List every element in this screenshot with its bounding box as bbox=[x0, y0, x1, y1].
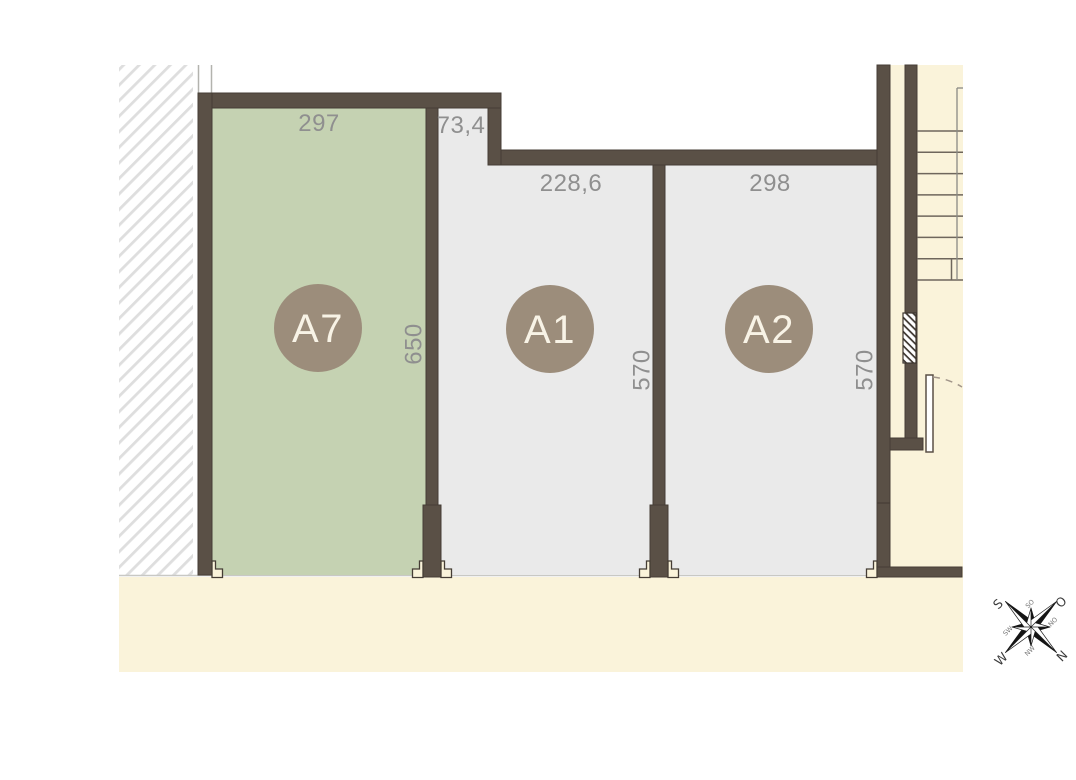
dimension-a2-width: 298 bbox=[749, 170, 791, 197]
dimension-a7-width: 297 bbox=[298, 110, 340, 137]
outdoor-area-bottom bbox=[119, 577, 963, 672]
wall-segment bbox=[423, 505, 441, 577]
unit-a7-label: A7 bbox=[292, 307, 344, 351]
dimension-a7-depth: 650 bbox=[400, 323, 427, 365]
wall-segment bbox=[650, 505, 668, 577]
dimension-a2-depth: 570 bbox=[851, 349, 878, 391]
wall-segment bbox=[488, 108, 501, 165]
insulation-hatch-block bbox=[903, 313, 916, 363]
wall-segment bbox=[198, 93, 212, 575]
wall-segment bbox=[501, 150, 890, 165]
door-leaf bbox=[926, 375, 933, 452]
wall-segment bbox=[653, 165, 665, 506]
wall-segment bbox=[877, 65, 890, 577]
unit-a1-label: A1 bbox=[524, 308, 576, 352]
wall-segment bbox=[198, 93, 501, 108]
dimension-a1-notch-width: 73,4 bbox=[437, 112, 486, 139]
hatched-neighbour-area bbox=[119, 65, 193, 575]
dimension-a1-depth: 570 bbox=[628, 349, 655, 391]
floor-plan-canvas: 297 73,4 228,6 298 650 570 570 A7 A1 A2 … bbox=[0, 0, 1076, 780]
dimension-a1-width: 228,6 bbox=[540, 170, 603, 197]
wall-segment bbox=[905, 65, 917, 440]
unit-a2-label: A2 bbox=[743, 308, 795, 352]
outdoor-area-right bbox=[890, 65, 963, 577]
wall-segment bbox=[426, 108, 438, 506]
wall-segment bbox=[890, 438, 923, 450]
wall-segment bbox=[877, 567, 962, 577]
